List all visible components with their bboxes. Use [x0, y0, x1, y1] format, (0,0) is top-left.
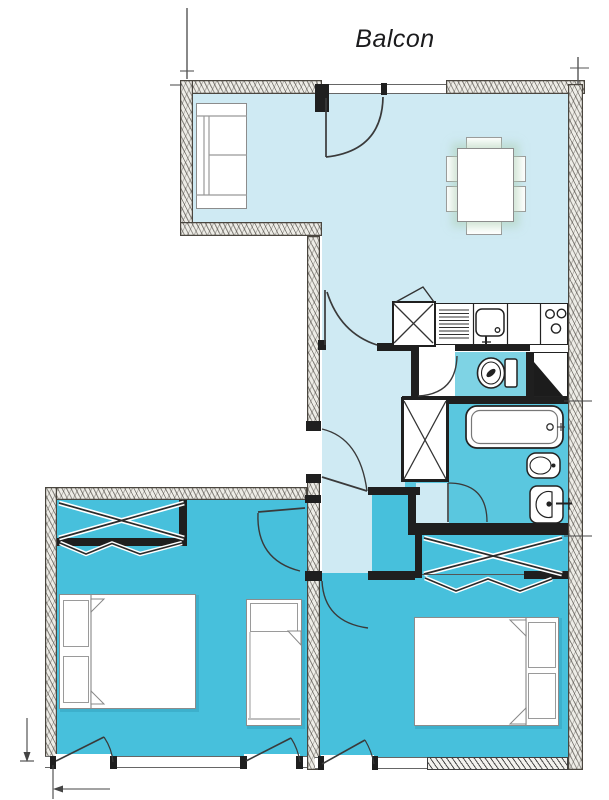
wall-bedroom1-top — [45, 487, 307, 500]
bedroom1-wardrobe-right-cap — [179, 500, 187, 546]
wall-top-left — [183, 80, 322, 94]
wall-bedroom2-wardrobe-left — [415, 533, 422, 578]
post-balcony-door-jamb — [381, 83, 387, 95]
dining-table — [457, 148, 514, 222]
wc-floor — [455, 352, 526, 397]
dining-chair-bottom — [466, 221, 502, 235]
bedroom2-balcony-door-opening — [321, 755, 374, 771]
hall-floor — [322, 345, 411, 497]
wall-living-bottom — [180, 222, 322, 236]
window-top — [329, 84, 446, 94]
dining-chair-right-2 — [512, 186, 526, 212]
wall-bedroom2-north — [368, 571, 415, 580]
bedroom1-balcony-door-opening-left — [55, 754, 112, 770]
bedroom2-wardrobe-floor — [421, 535, 568, 575]
cap-entry-door-top — [306, 421, 321, 431]
wc-door-pocket — [419, 352, 455, 397]
bedroom1-wardrobe-bottom — [57, 538, 187, 546]
bedroom1-single-bed-pillow — [250, 603, 298, 632]
post-b1-bottom-3 — [240, 756, 247, 769]
wall-bedroom2-north-stub — [305, 571, 322, 581]
wall-wc-left — [411, 351, 419, 397]
wall-bathroom-bottom — [408, 523, 568, 535]
dining-chair-right-1 — [512, 156, 526, 182]
wall-mid-vertical-lower — [307, 477, 320, 770]
post-hall-door — [318, 340, 326, 350]
sofa — [196, 103, 247, 209]
wall-mid-vertical-upper — [307, 236, 320, 430]
cap-entry-door-bottom — [306, 474, 321, 483]
cap-bedroom1-door-top — [305, 495, 321, 503]
window-bedroom2-bottom — [427, 757, 568, 770]
floor-plan: Balcon — [0, 0, 609, 800]
bedroom2-pillow-1 — [528, 622, 556, 668]
post-b1-bottom-2 — [110, 756, 117, 769]
wall-bedroom1-left — [45, 487, 57, 768]
kitchen-counter — [435, 303, 568, 345]
balcony-label: Balcon — [330, 25, 460, 54]
bathroom-door-pocket — [416, 483, 449, 528]
kitchen-appliance — [392, 301, 436, 347]
post-balcony-door-hinge — [315, 84, 329, 112]
wall-right — [568, 84, 583, 770]
bathroom-closet — [401, 397, 449, 482]
post-b1-bottom-1 — [50, 756, 56, 769]
wall-left — [180, 80, 193, 232]
bedroom1-pillow-2 — [63, 656, 89, 703]
wall-nook-top — [368, 487, 420, 495]
bedroom2-pillow-2 — [528, 673, 556, 719]
corner-unit-left-bar — [526, 352, 534, 397]
bedroom1-pillow-1 — [63, 600, 89, 647]
post-b1-bottom-4 — [296, 756, 303, 769]
wall-top-right — [446, 80, 585, 94]
dining-area-floor — [322, 230, 568, 305]
post-b2-bottom-1 — [318, 756, 324, 770]
post-b2-bottom-2 — [372, 756, 378, 770]
bedroom1-balcony-door-opening-right — [244, 754, 300, 770]
wall-bedroom2-wardrobe-bottom — [524, 571, 568, 579]
balcony-railing-left — [180, 8, 194, 79]
